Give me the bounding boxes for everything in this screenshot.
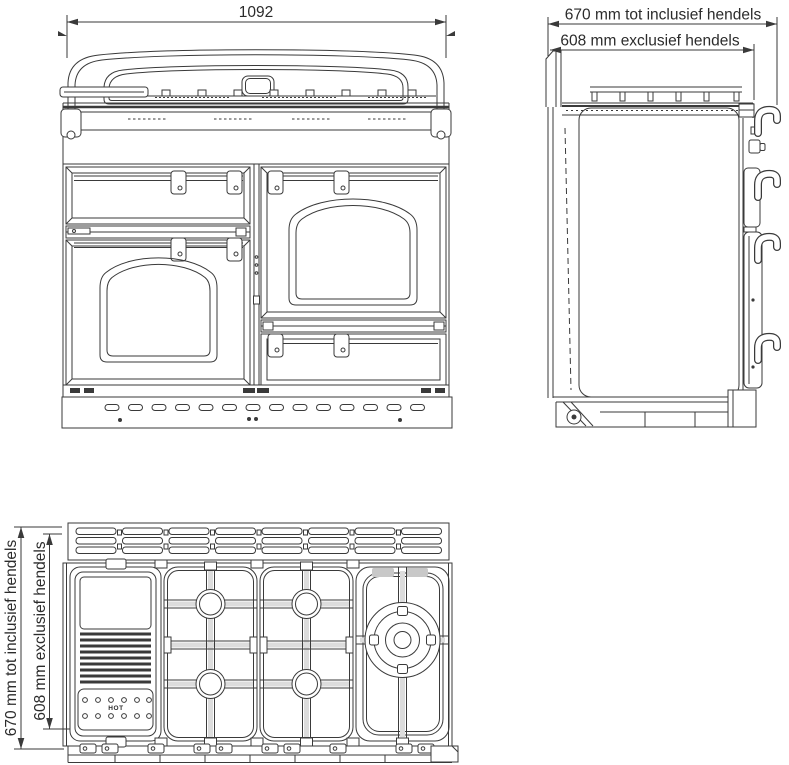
side-plinth [553, 390, 756, 427]
right-oven-door-handle [268, 171, 349, 194]
plinth-vent-slots [105, 405, 425, 411]
burner-left-rear [196, 590, 225, 619]
backsplash [68, 50, 444, 113]
technical-drawing-canvas: 1092 [0, 0, 789, 765]
side-panel [579, 108, 739, 397]
top-view: 670 mm tot inclusief hendels 608 mm excl… [3, 523, 458, 763]
burner-middle-rear [292, 590, 321, 619]
right-oven-window [289, 199, 417, 305]
towel-rail-end-right [431, 109, 451, 139]
griddle-plate: HOT [70, 559, 161, 747]
control-knob-side [749, 140, 765, 153]
towel-rail-end-left [61, 109, 81, 139]
grill-door-handle-side [758, 174, 777, 197]
side-backsplash [546, 51, 561, 107]
dim-label-top-depth-incl: 670 mm tot inclusief hendels [3, 540, 20, 737]
castor-wheel [563, 402, 593, 426]
burner-section-left [164, 562, 257, 746]
pan-support-grate-side [590, 87, 742, 101]
hidden-edge-line [565, 128, 571, 390]
burner-middle-front [292, 670, 321, 699]
wok-burner [365, 603, 440, 678]
right-oven-door [261, 167, 446, 318]
front-view: 1092 [58, 4, 455, 428]
oven-door-handle-side [758, 237, 777, 260]
center-divider [254, 164, 260, 385]
wok-burner-section [356, 567, 449, 746]
storage-drawer [261, 334, 446, 385]
left-oven-door-handle [171, 238, 242, 261]
dim-label-front-width: 1092 [239, 4, 273, 21]
rear-vents [68, 523, 449, 560]
hot-label: HOT [108, 705, 124, 712]
left-oven-door [66, 238, 250, 385]
drawer-rail [261, 320, 446, 332]
pan-support-feet [162, 90, 416, 96]
vent-slot-groups [76, 528, 442, 554]
drawer-handle [268, 334, 349, 357]
side-body [548, 107, 762, 398]
side-depth-dimension-excluding-handles: 608 mm exclusief hendels [550, 33, 754, 101]
left-separator-rail [66, 226, 250, 238]
drawer-handle-side [758, 337, 777, 360]
burner-section-middle [260, 562, 353, 746]
hob-surface-side [562, 103, 754, 118]
plinth-front [62, 397, 452, 428]
vent-gap-tabs [118, 530, 401, 549]
griddle-ribs [80, 634, 151, 682]
side-view: 670 mm tot inclusief hendels 608 mm excl… [546, 7, 777, 428]
grill-door [66, 167, 250, 224]
dim-label-top-depth-excl: 608 mm exclusief hendels [32, 541, 49, 720]
range-cooker-dimension-drawing: 1092 [0, 0, 789, 765]
side-depth-dimension-including-handles: 670 mm tot inclusief hendels [548, 7, 777, 106]
burner-left-front [196, 670, 225, 699]
base-band [63, 385, 449, 393]
dim-label-side-depth-excl: 608 mm exclusief hendels [560, 33, 739, 50]
dim-label-side-depth-incl: 670 mm tot inclusief hendels [565, 7, 762, 24]
right-corner-trim [446, 31, 455, 36]
grill-door-handle [171, 171, 242, 194]
left-oven-window [100, 258, 217, 362]
hob-rail-handle [758, 110, 777, 133]
plinth-right-bracket [728, 390, 756, 427]
left-corner-trim [58, 31, 67, 36]
